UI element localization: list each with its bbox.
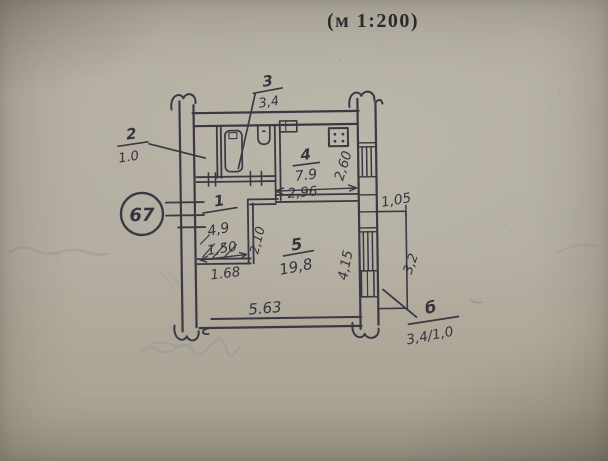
dim-balcony-length: 3,2 [401,252,422,276]
paper-speckles [29,41,561,421]
room-2-area: 1.0 [117,149,140,167]
room-3-area: 3,4 [258,94,281,112]
scale-note: (м 1:200) [327,10,419,32]
paper-stains [56,194,483,303]
dim-balcony-width: 1,05 [380,190,412,211]
dim-living-depth: 4,15 [335,249,357,282]
wall-break-top-left [171,94,196,109]
dim-kitchen-width: 2,96 [287,183,318,201]
stove-icon [329,128,348,146]
plan-drawing: 67 2 1.0 3 3,4 1 4,9 4 [116,69,459,352]
room-1-number: 1 [213,191,226,210]
living-window-icon [363,232,373,271]
room-1-area: 4,9 [206,220,231,240]
floor-plan-canvas: (м 1:200) [0,0,608,461]
wall-break-bottom-left [174,325,199,340]
dim-kitchen-depth: 2,60 [331,149,355,182]
kitchen-window-icon [362,147,371,177]
room-5-number: 5 [290,234,304,254]
room-5-area: 19,8 [278,255,314,279]
dim-living-width: 5.63 [248,298,283,319]
balcony-leader-line [383,289,416,317]
room-3-number: 3 [261,72,273,91]
room-2-number: 2 [125,125,137,144]
entrance-door-lines [166,202,205,228]
dim-hall-opening: 2,10 [246,225,267,256]
door-opening-ticks [208,171,261,186]
windows-group [360,147,375,297]
apartment-number-group: 67 [121,192,206,235]
room-4-area: 7.9 [294,166,318,185]
scanned-floor-plan-photo: (м 1:200) [0,0,608,461]
stove-burners [333,133,344,143]
sink-icon [258,126,270,144]
apartment-number: 67 [129,205,155,226]
bathtub-drain [229,133,237,139]
balcony-number: б [424,297,438,317]
wall-break-top-right [349,91,382,107]
balcony-area: 3,4/1,0 [405,324,455,349]
room-2-leader [149,143,205,159]
dim-closet-outer: 1.68 [210,264,242,283]
room-4-number: 4 [299,145,312,164]
kitchen-vent-icon [280,121,297,132]
